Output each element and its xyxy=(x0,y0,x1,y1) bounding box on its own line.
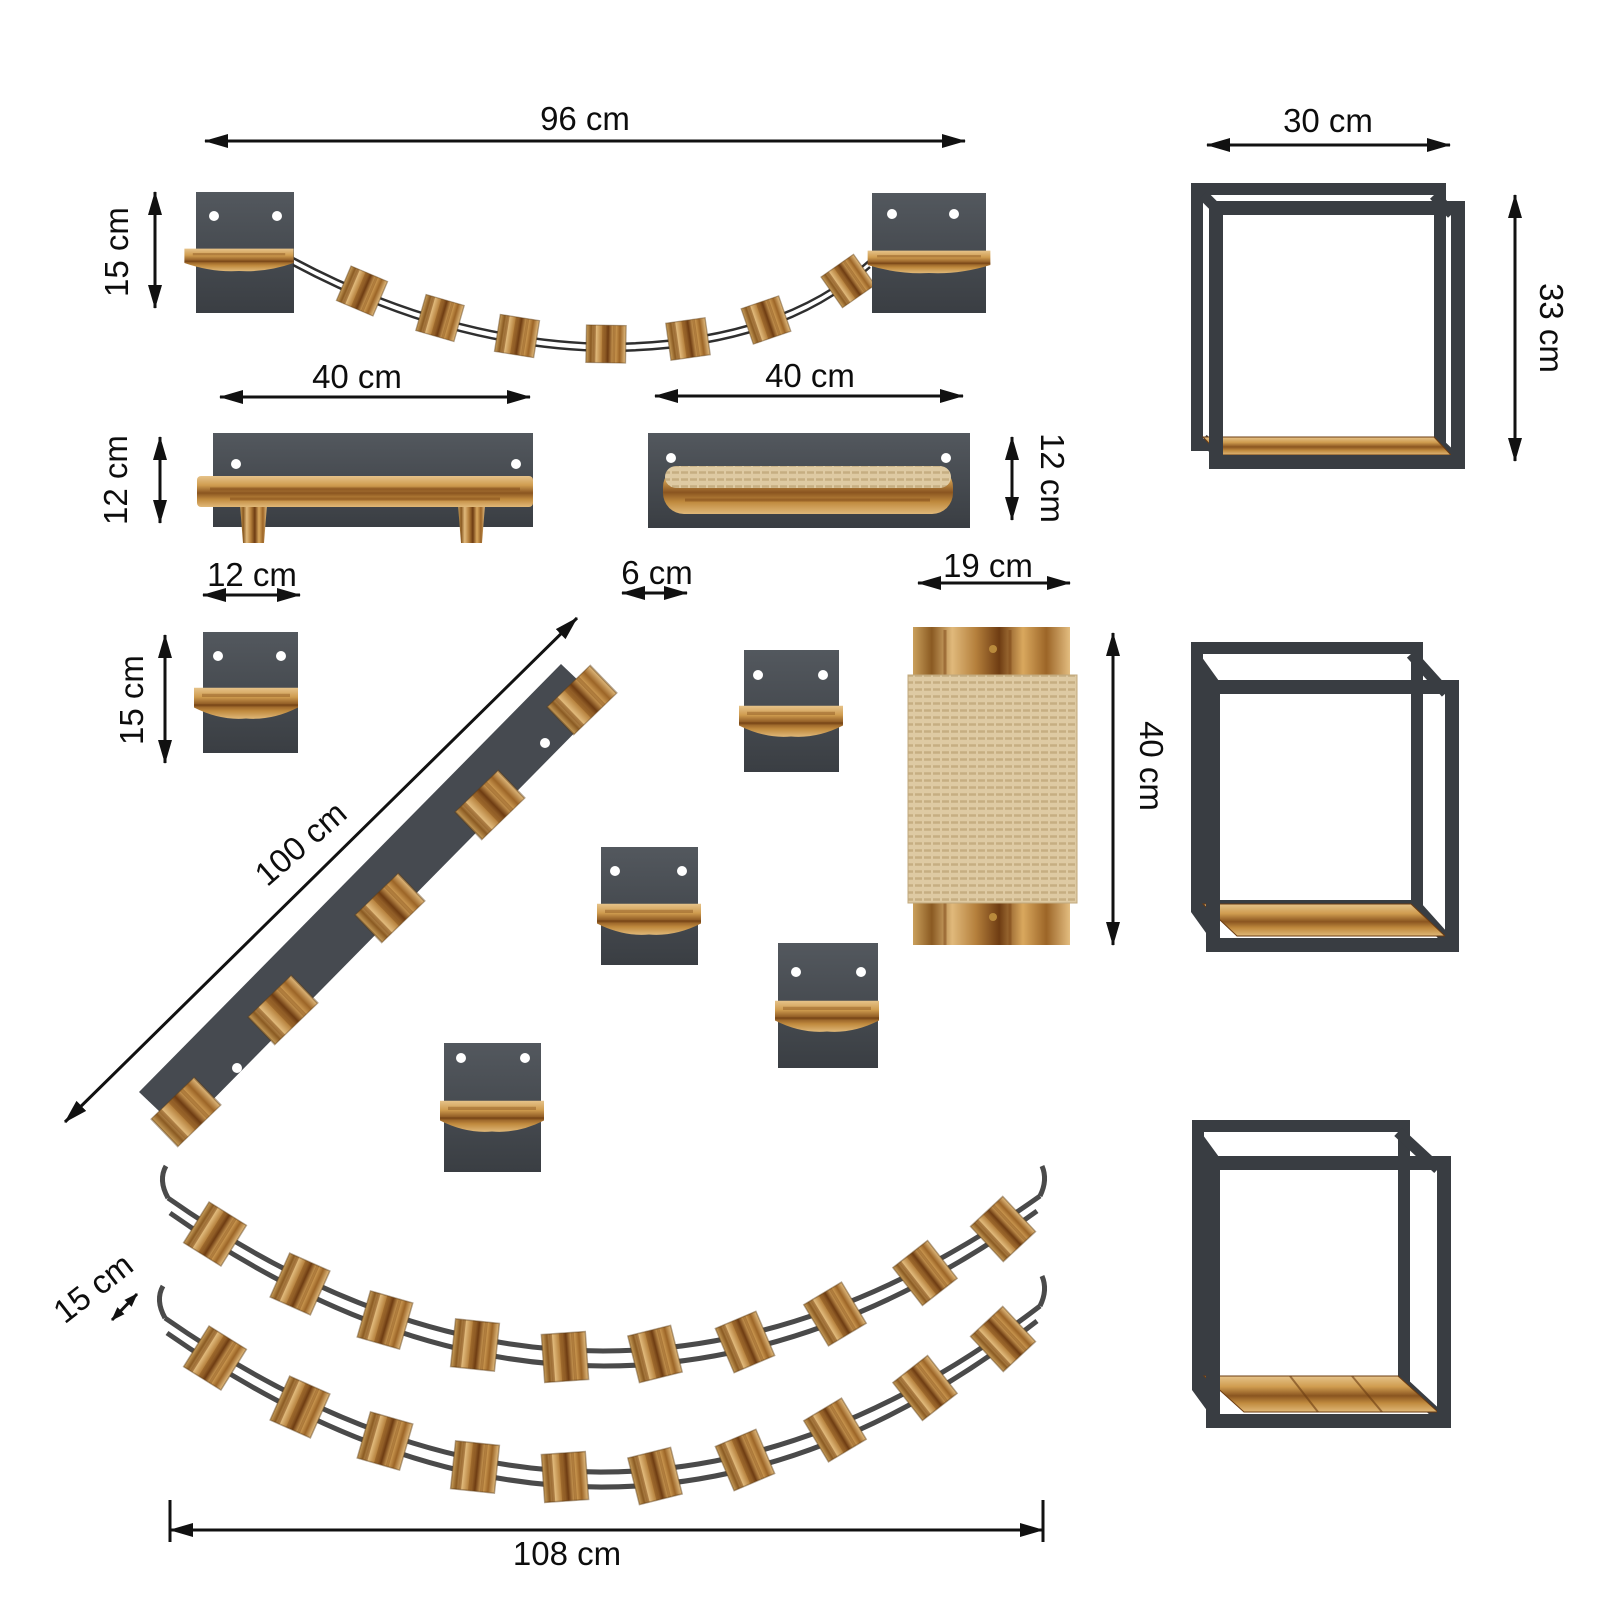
dim-label-shelf-left-height: 12 cm xyxy=(97,435,134,525)
screw-hole xyxy=(213,651,223,661)
dim-ramp-width: 6 cm xyxy=(621,554,693,593)
diagram-svg: 96 cm 15 cm 30 cm 33 cm xyxy=(0,0,1600,1600)
dim-bridge-width: 96 cm xyxy=(205,100,965,141)
wood-shelf-40 xyxy=(197,433,533,543)
shelf-leg xyxy=(240,505,267,543)
screw-hole xyxy=(232,1063,242,1073)
bridge-plank xyxy=(495,314,540,357)
curved-bridge-lower xyxy=(159,1276,1044,1505)
dim-label-cube-height: 33 cm xyxy=(1533,283,1570,373)
dim-label-shelf-left-width: 40 cm xyxy=(312,358,402,395)
wall-step-4 xyxy=(440,1043,544,1172)
bridge-plank xyxy=(741,296,791,344)
screw-hole xyxy=(231,459,241,469)
wall-step-3 xyxy=(775,943,879,1068)
cube-shelf-middle xyxy=(1191,642,1452,951)
cube-shelf-top xyxy=(1197,189,1458,462)
dim-label-step-height: 15 cm xyxy=(113,655,150,745)
bridge-plank xyxy=(416,295,464,342)
dim-shelf-left-height: 12 cm xyxy=(97,435,160,525)
dim-label-bridge-width: 96 cm xyxy=(540,100,630,137)
screw-hole xyxy=(540,738,550,748)
cushion-shelf-40 xyxy=(648,433,970,528)
rope-bridge-96 xyxy=(184,192,990,363)
dim-curved-width: 108 cm xyxy=(170,1500,1043,1572)
dim-shelf-cushion-height: 12 cm xyxy=(1012,433,1071,523)
screw xyxy=(989,913,997,921)
dim-label-scratcher-width: 19 cm xyxy=(943,547,1033,584)
cushion-sisal-top xyxy=(665,466,951,488)
bridge-plank xyxy=(586,325,626,363)
dim-cube-height: 33 cm xyxy=(1515,195,1570,461)
screw-hole xyxy=(272,211,282,221)
screw-hole xyxy=(949,209,959,219)
cube-floor-board xyxy=(1203,904,1445,936)
dim-label-cube-width: 30 cm xyxy=(1283,102,1373,139)
dim-shelf-cushion-width: 40 cm xyxy=(655,357,963,396)
bridge-plank xyxy=(666,318,710,361)
curved-bridge-upper xyxy=(162,1166,1044,1383)
dim-bridge-bracket-height: 15 cm xyxy=(98,192,155,308)
dim-label-bracket-height: 15 cm xyxy=(98,207,135,297)
shelf-board xyxy=(197,476,533,507)
dim-label-curved-width: 108 cm xyxy=(513,1535,621,1572)
bridge-plank xyxy=(336,266,387,316)
dim-label-cushion-width: 40 cm xyxy=(765,357,855,394)
cube-shelf-bottom xyxy=(1192,1120,1444,1427)
screw-hole xyxy=(511,459,521,469)
scratcher-sisal-wrap xyxy=(908,675,1077,903)
dim-label-cushion-height: 12 cm xyxy=(1034,433,1071,523)
wall-step-1 xyxy=(739,650,843,772)
dim-label-ramp-width: 6 cm xyxy=(621,554,693,591)
dim-label-curved-depth: 15 cm xyxy=(46,1246,140,1330)
screw xyxy=(989,645,997,653)
dim-curved-depth: 15 cm xyxy=(46,1246,140,1330)
dim-scratcher-width: 19 cm xyxy=(918,547,1070,584)
dim-cube-width: 30 cm xyxy=(1207,102,1450,145)
dim-label-scratcher-height: 40 cm xyxy=(1133,721,1170,811)
product-dimension-diagram: 96 cm 15 cm 30 cm 33 cm xyxy=(0,0,1600,1600)
shelf-leg xyxy=(458,505,485,543)
screw-hole xyxy=(887,209,897,219)
dim-scratcher-height: 40 cm xyxy=(1113,633,1170,945)
dim-shelf-left-width: 40 cm xyxy=(220,358,530,397)
dim-label-step-width: 12 cm xyxy=(207,556,297,593)
dim-label-ramp-length: 100 cm xyxy=(247,794,353,893)
dim-step-width: 12 cm xyxy=(203,556,300,595)
cube-floor-board xyxy=(1204,1376,1438,1412)
screw-hole xyxy=(941,453,951,463)
scratch-board xyxy=(908,627,1077,945)
dim-step-height: 15 cm xyxy=(113,635,165,763)
screw-hole xyxy=(276,651,286,661)
cube-floor-board xyxy=(1203,437,1451,455)
wall-step-main xyxy=(194,632,298,753)
screw-hole xyxy=(209,211,219,221)
wall-step-2 xyxy=(597,847,701,965)
screw-hole xyxy=(666,453,676,463)
